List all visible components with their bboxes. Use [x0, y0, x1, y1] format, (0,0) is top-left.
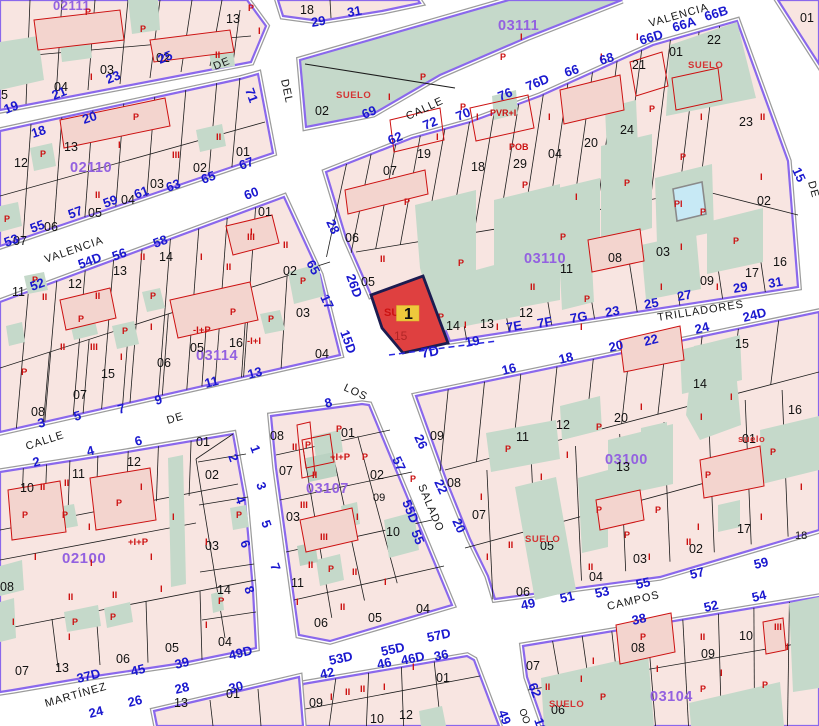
svg-text:09: 09 [373, 492, 385, 504]
svg-text:10: 10 [370, 712, 384, 726]
svg-text:31: 31 [767, 274, 784, 291]
svg-text:P: P [362, 452, 368, 462]
svg-text:03: 03 [656, 245, 670, 259]
svg-text:10: 10 [20, 481, 34, 495]
svg-text:01: 01 [196, 435, 210, 449]
svg-text:18: 18 [471, 160, 485, 174]
svg-text:07: 07 [472, 508, 486, 522]
svg-text:II: II [60, 342, 65, 353]
svg-text:05: 05 [165, 641, 179, 655]
svg-text:I: I [716, 282, 719, 293]
svg-text:06: 06 [116, 652, 130, 666]
svg-text:17: 17 [737, 522, 751, 536]
svg-text:II: II [216, 132, 221, 143]
svg-text:03107: 03107 [306, 481, 349, 497]
svg-text:7E: 7E [505, 317, 524, 335]
svg-text:P: P [762, 680, 768, 690]
svg-text:42: 42 [319, 664, 336, 682]
svg-text:16: 16 [229, 336, 243, 350]
svg-text:11: 11 [291, 576, 304, 590]
svg-text:I: I [730, 392, 733, 403]
svg-text:19: 19 [417, 147, 431, 161]
svg-text:13: 13 [113, 264, 127, 278]
svg-text:10: 10 [739, 629, 753, 643]
svg-text:14: 14 [446, 319, 460, 333]
svg-text:01: 01 [436, 671, 450, 685]
svg-text:16: 16 [788, 403, 802, 417]
svg-text:21: 21 [632, 58, 646, 72]
svg-text:I: I [700, 112, 703, 123]
svg-text:22: 22 [707, 33, 721, 47]
svg-text:II: II [64, 478, 69, 489]
svg-text:29: 29 [513, 157, 527, 171]
svg-text:I: I [150, 552, 153, 563]
svg-text:I: I [660, 282, 663, 293]
svg-text:46: 46 [376, 654, 393, 672]
svg-text:suelo: suelo [738, 434, 765, 445]
svg-text:20: 20 [614, 411, 628, 425]
svg-text:02: 02 [205, 468, 219, 482]
svg-text:7F: 7F [536, 314, 554, 331]
svg-text:07: 07 [279, 464, 293, 478]
svg-text:P: P [21, 367, 28, 378]
svg-text:I: I [575, 192, 578, 203]
svg-text:P: P [624, 178, 630, 188]
svg-text:P: P [122, 326, 128, 336]
svg-text:P: P [700, 684, 706, 694]
svg-text:I: I [700, 412, 703, 423]
svg-text:P: P [655, 505, 661, 515]
svg-text:I: I [90, 558, 93, 569]
svg-text:II: II [360, 684, 365, 695]
svg-text:P: P [522, 180, 528, 190]
svg-text:05: 05 [88, 206, 102, 220]
svg-text:09: 09 [430, 429, 444, 443]
svg-text:P: P [680, 152, 686, 162]
svg-text:I: I [250, 227, 253, 238]
svg-text:11: 11 [72, 467, 85, 481]
svg-text:I: I [486, 552, 489, 563]
svg-text:I: I [436, 132, 439, 143]
svg-text:12: 12 [399, 708, 413, 722]
svg-text:I: I [205, 537, 208, 548]
svg-text:23: 23 [604, 303, 621, 320]
svg-text:I: I [640, 402, 643, 413]
svg-text:13: 13 [226, 12, 240, 26]
svg-text:P: P [420, 72, 426, 82]
svg-text:II: II [340, 602, 345, 613]
svg-text:12: 12 [556, 418, 570, 432]
svg-text:P: P [4, 214, 10, 224]
svg-text:09: 09 [700, 274, 714, 288]
svg-text:04: 04 [315, 347, 329, 361]
svg-text:02: 02 [283, 264, 297, 278]
svg-text:II: II [292, 442, 297, 453]
svg-text:P: P [410, 474, 416, 484]
svg-text:-I+I: -I+I [247, 336, 261, 347]
svg-text:I: I [760, 172, 763, 183]
svg-text:III: III [172, 150, 180, 161]
svg-text:I: I [786, 642, 789, 653]
svg-text:II: II [68, 592, 73, 603]
svg-text:P: P [236, 510, 242, 520]
svg-text:P: P [230, 307, 236, 317]
svg-text:15: 15 [394, 329, 408, 343]
svg-text:36: 36 [433, 646, 450, 664]
svg-text:11: 11 [12, 285, 25, 299]
svg-text:31: 31 [346, 3, 363, 20]
svg-text:11: 11 [560, 262, 573, 276]
svg-text:P: P [140, 24, 146, 34]
svg-text:P: P [458, 258, 464, 268]
svg-text:13: 13 [55, 661, 69, 675]
svg-text:14: 14 [693, 377, 707, 391]
svg-text:I: I [88, 522, 91, 533]
svg-text:II: II [95, 291, 100, 302]
svg-text:02110: 02110 [70, 160, 112, 176]
svg-text:III: III [320, 532, 328, 543]
svg-text:-I+P: -I+P [193, 325, 211, 336]
svg-text:II: II [380, 254, 385, 265]
svg-text:P: P [305, 440, 311, 450]
svg-text:01: 01 [669, 45, 683, 59]
svg-text:I: I [656, 664, 659, 675]
svg-text:I: I [592, 656, 595, 667]
svg-text:SUELO: SUELO [336, 90, 371, 101]
svg-text:12: 12 [127, 455, 141, 469]
svg-text:27: 27 [676, 287, 693, 304]
svg-text:02: 02 [315, 104, 329, 118]
svg-text:P: P [116, 498, 122, 508]
svg-text:P: P [78, 314, 84, 324]
svg-text:1: 1 [404, 306, 413, 323]
svg-text:13: 13 [480, 317, 494, 331]
svg-text:P: P [133, 112, 139, 122]
svg-text:I: I [697, 522, 700, 533]
svg-text:03111: 03111 [498, 18, 539, 34]
svg-text:I: I [140, 482, 143, 493]
svg-text:29: 29 [732, 279, 749, 296]
svg-text:04: 04 [416, 602, 430, 616]
svg-text:P: P [85, 7, 91, 17]
svg-text:15: 15 [101, 367, 115, 381]
svg-text:I: I [464, 320, 467, 331]
svg-text:07: 07 [383, 164, 397, 178]
svg-text:II: II [530, 282, 535, 293]
svg-text:P: P [649, 104, 655, 114]
svg-text:I: I [90, 72, 93, 83]
svg-text:I: I [68, 632, 71, 643]
svg-text:7D: 7D [420, 342, 440, 361]
svg-text:I: I [160, 584, 163, 595]
svg-text:II: II [312, 470, 317, 481]
svg-text:I: I [548, 112, 551, 123]
svg-text:13: 13 [174, 696, 188, 710]
svg-text:I: I [150, 322, 153, 333]
svg-text:I: I [330, 692, 333, 703]
svg-text:I: I [760, 512, 763, 523]
svg-text:I: I [356, 512, 359, 523]
svg-text:07: 07 [526, 659, 540, 673]
svg-text:7G: 7G [569, 308, 589, 326]
svg-text:P: P [560, 232, 566, 242]
svg-text:04: 04 [121, 193, 135, 207]
svg-text:P: P [700, 207, 706, 217]
svg-text:12: 12 [68, 277, 82, 291]
svg-text:P: P [150, 291, 156, 301]
svg-text:P: P [600, 692, 606, 702]
svg-text:06: 06 [44, 220, 58, 234]
svg-text:P: P [596, 422, 602, 432]
svg-text:01: 01 [258, 205, 272, 219]
svg-text:P: P [404, 197, 410, 207]
svg-text:II: II [352, 567, 357, 578]
svg-text:15: 15 [735, 337, 749, 351]
svg-text:03: 03 [296, 306, 310, 320]
svg-text:P: P [640, 632, 646, 642]
svg-text:17: 17 [745, 266, 759, 280]
svg-text:II: II [95, 190, 100, 201]
svg-text:05: 05 [190, 341, 204, 355]
svg-text:I: I [580, 674, 583, 685]
svg-text:+I+P: +I+P [128, 537, 149, 548]
svg-text:I: I [118, 140, 121, 151]
svg-text:I: I [496, 322, 499, 333]
svg-text:06: 06 [157, 356, 171, 370]
svg-text:II: II [760, 112, 765, 123]
svg-text:P: P [72, 617, 78, 627]
svg-text:P: P [22, 510, 28, 520]
svg-text:P: P [40, 149, 46, 159]
svg-text:03104: 03104 [650, 689, 693, 705]
svg-text:07: 07 [73, 388, 87, 402]
svg-text:02: 02 [370, 468, 384, 482]
svg-text:II: II [40, 482, 45, 493]
svg-text:I: I [480, 492, 483, 503]
svg-text:07: 07 [15, 664, 29, 678]
svg-text:SUELO: SUELO [549, 699, 584, 710]
svg-text:P: P [733, 236, 739, 246]
svg-text:10: 10 [386, 525, 400, 539]
svg-text:06: 06 [314, 616, 328, 630]
svg-text:I: I [200, 252, 203, 263]
svg-text:14: 14 [217, 583, 231, 597]
svg-text:III: III [300, 500, 308, 511]
svg-text:13: 13 [64, 140, 78, 154]
svg-text:09: 09 [701, 647, 715, 661]
svg-text:16: 16 [773, 255, 787, 269]
svg-text:P: P [110, 612, 116, 622]
svg-text:08: 08 [631, 641, 645, 655]
svg-text:12: 12 [519, 306, 533, 320]
svg-text:25: 25 [643, 295, 660, 312]
svg-text:P: P [336, 424, 342, 434]
svg-text:I: I [296, 597, 299, 608]
svg-text:29: 29 [310, 13, 327, 30]
svg-text:II: II [42, 292, 47, 303]
svg-text:III: III [90, 342, 98, 353]
svg-text:P: P [328, 564, 334, 574]
svg-text:P: P [596, 505, 602, 515]
svg-text:P: P [268, 314, 274, 324]
svg-text:II: II [588, 562, 593, 573]
svg-text:SUELO: SUELO [525, 534, 560, 545]
svg-text:P: P [62, 510, 68, 520]
svg-text:14: 14 [159, 250, 173, 264]
svg-text:I: I [34, 552, 37, 563]
svg-text:12: 12 [14, 156, 28, 170]
svg-text:03: 03 [633, 552, 647, 566]
svg-text:08: 08 [0, 580, 14, 594]
svg-text:P: P [624, 530, 630, 540]
svg-text:I: I [205, 620, 208, 631]
svg-text:II: II [112, 590, 117, 601]
svg-text:P: P [584, 294, 590, 304]
svg-text:P: P [248, 3, 254, 13]
svg-text:I: I [258, 26, 261, 37]
svg-text:II: II [140, 252, 145, 263]
svg-text:19: 19 [464, 333, 481, 350]
svg-text:01: 01 [341, 426, 355, 440]
svg-text:II: II [686, 537, 691, 548]
svg-text:+I+P: +I+P [330, 452, 351, 463]
svg-text:11: 11 [516, 430, 529, 444]
svg-text:II: II [545, 682, 550, 693]
svg-text:I: I [720, 668, 723, 679]
svg-text:20: 20 [584, 136, 598, 150]
svg-text:P: P [500, 52, 506, 62]
svg-text:II: II [700, 632, 705, 643]
svg-text:PI: PI [674, 199, 683, 209]
svg-text:08: 08 [608, 251, 622, 265]
svg-text:08: 08 [270, 429, 284, 443]
svg-text:POB: POB [509, 142, 529, 152]
svg-text:03: 03 [150, 177, 164, 191]
svg-text:09: 09 [309, 696, 323, 710]
svg-text:03: 03 [286, 510, 300, 524]
svg-text:05: 05 [368, 611, 382, 625]
svg-text:I: I [120, 352, 123, 363]
svg-text:01: 01 [800, 11, 814, 25]
svg-text:I: I [172, 512, 175, 523]
svg-text:SUELO: SUELO [688, 60, 723, 71]
svg-text:P: P [505, 444, 511, 454]
svg-text:II: II [345, 687, 350, 698]
svg-text:I: I [383, 682, 386, 693]
svg-text:I: I [12, 617, 15, 628]
svg-text:23: 23 [739, 115, 753, 129]
svg-text:06: 06 [345, 231, 359, 245]
svg-text:III: III [774, 622, 782, 633]
svg-text:I: I [680, 242, 683, 253]
svg-text:PVR+I: PVR+I [490, 108, 516, 118]
svg-text:I: I [520, 32, 523, 43]
svg-text:24: 24 [620, 123, 634, 137]
svg-text:II: II [308, 560, 313, 571]
svg-text:I: I [388, 92, 391, 103]
svg-text:P: P [218, 596, 225, 607]
svg-text:I: I [540, 472, 543, 483]
svg-text:I: I [476, 112, 479, 123]
svg-text:02: 02 [757, 194, 771, 208]
svg-text:04: 04 [548, 147, 562, 161]
svg-text:18: 18 [795, 530, 807, 542]
svg-text:II: II [283, 240, 288, 251]
svg-text:P: P [705, 470, 711, 480]
svg-text:13: 13 [616, 460, 630, 474]
svg-text:02100: 02100 [62, 550, 106, 567]
svg-text:P: P [770, 447, 776, 457]
svg-text:I: I [566, 450, 569, 461]
svg-text:I: I [800, 482, 803, 493]
svg-text:I: I [384, 577, 387, 588]
svg-text:II: II [508, 540, 513, 551]
svg-text:II: II [226, 262, 231, 273]
svg-text:P: P [300, 276, 306, 286]
svg-text:I: I [648, 552, 651, 563]
